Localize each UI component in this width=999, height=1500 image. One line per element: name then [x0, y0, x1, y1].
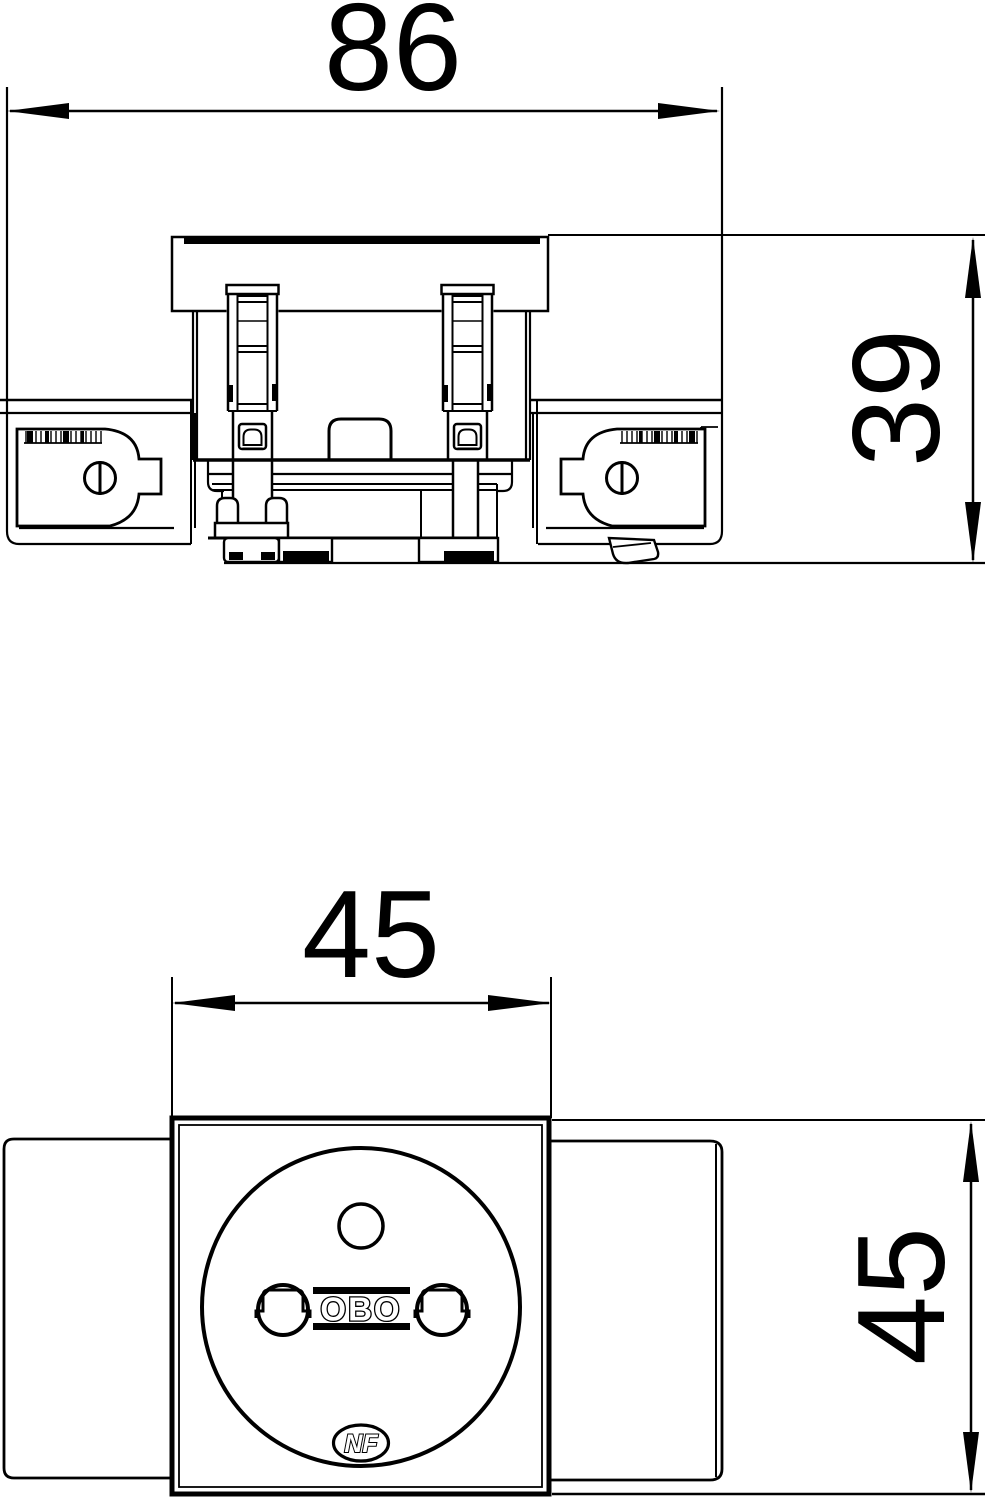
- dimension-label-45-top: 45: [302, 866, 440, 1004]
- arrowhead-up-icon: [965, 237, 981, 298]
- insert-cover-seal: [184, 237, 540, 244]
- nf-mark-text: NF: [344, 1430, 378, 1458]
- nf-certification-mark: NF: [334, 1425, 389, 1461]
- duct-cover-left: [4, 1139, 172, 1478]
- arrowhead-left-icon: [172, 995, 235, 1011]
- arrowhead-down-icon: [963, 1432, 979, 1493]
- obo-logo-text: OBO: [320, 1291, 401, 1328]
- insert-bottom-block-right: [419, 538, 498, 562]
- dimension-label-86: 86: [324, 0, 462, 117]
- duct-right-clamp-serration: [620, 431, 698, 443]
- contact-pad: [283, 551, 329, 561]
- dimension-label-39: 39: [828, 329, 966, 467]
- arrowhead-right-icon: [488, 995, 551, 1011]
- socket-dimension-drawing: 86 39: [0, 0, 999, 1500]
- duct-right-flap: [609, 538, 658, 563]
- front-view: OBO NF 45 45: [4, 866, 985, 1494]
- arrowhead-up-icon: [963, 1121, 979, 1182]
- fixing-latch-right: [442, 285, 494, 460]
- fixing-latch-left: [227, 285, 279, 460]
- insert-foot-prong-right: [266, 498, 287, 523]
- arrowhead-left-icon: [7, 103, 69, 119]
- latch-left-lower-bar-fill: [233, 460, 272, 506]
- duct-left-profile: [0, 87, 195, 544]
- contact-pad: [229, 552, 243, 560]
- obo-logo: OBO: [313, 1287, 410, 1330]
- latch-right-lower-bar: [453, 460, 478, 538]
- dimension-width-45: 45: [172, 866, 551, 1118]
- contact-pad: [261, 552, 275, 560]
- technical-drawing-page: 86 39: [0, 0, 999, 1500]
- duct-left-clamp-serration: [24, 431, 102, 443]
- insert-flange-hook-right: [496, 460, 512, 491]
- duct-right-inner-wall: [533, 400, 537, 544]
- arrowhead-down-icon: [965, 502, 981, 563]
- contact-pad: [444, 551, 494, 561]
- arrowhead-right-icon: [658, 103, 720, 119]
- duct-cover-right: [549, 1141, 722, 1480]
- insert-centre-tab: [329, 419, 391, 460]
- earth-pin-hole: [339, 1204, 383, 1248]
- insert-bottom-block-centre: [279, 538, 332, 562]
- insert-foot-prong-left: [217, 498, 238, 523]
- phase-hole-right: [415, 1285, 469, 1335]
- dimension-label-45-right: 45: [833, 1227, 971, 1365]
- insert-foot-plate: [215, 523, 288, 538]
- insert-flange-hook-left: [208, 460, 224, 491]
- insert-bottom-block-left: [224, 538, 279, 562]
- dimension-width-86: 86: [7, 0, 720, 119]
- phase-hole-left: [256, 1285, 310, 1335]
- top-view-section: 86 39: [0, 0, 985, 563]
- duct-right-profile: [531, 87, 722, 563]
